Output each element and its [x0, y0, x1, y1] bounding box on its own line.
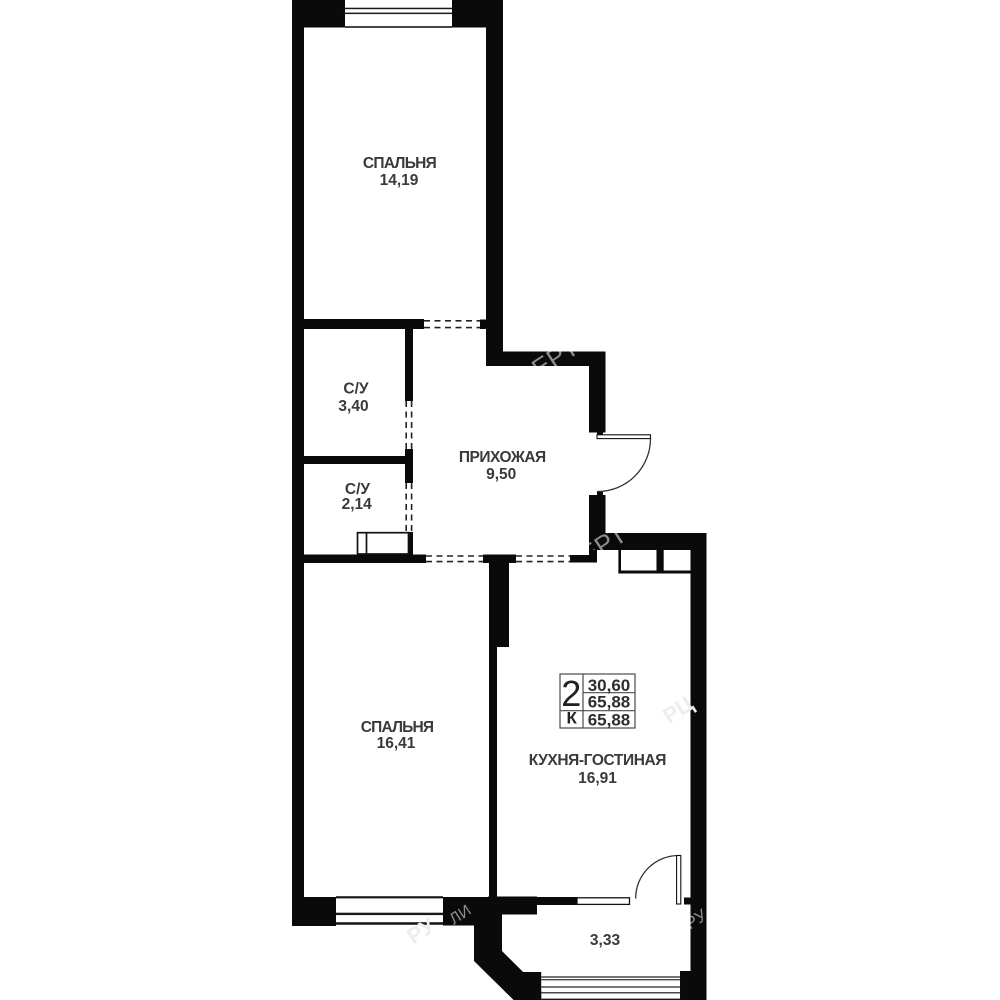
svg-text:К: К: [567, 709, 578, 728]
svg-text:С/У: С/У: [343, 381, 369, 398]
svg-text:65,88: 65,88: [588, 693, 631, 712]
svg-text:16,41: 16,41: [377, 735, 416, 752]
svg-text:14,19: 14,19: [380, 172, 419, 189]
svg-text:65,88: 65,88: [588, 711, 631, 730]
svg-text:СПАЛЬНЯ: СПАЛЬНЯ: [361, 719, 434, 736]
svg-text:ПРИХОЖАЯ: ПРИХОЖАЯ: [459, 449, 546, 466]
svg-text:КУХНЯ-ГОСТИНАЯ: КУХНЯ-ГОСТИНАЯ: [529, 752, 667, 769]
svg-text:2,14: 2,14: [342, 496, 373, 513]
svg-text:16,91: 16,91: [578, 770, 617, 787]
svg-text:3,40: 3,40: [338, 398, 368, 415]
svg-text:9,50: 9,50: [486, 466, 516, 483]
svg-text:3,33: 3,33: [590, 932, 621, 949]
svg-text:СПАЛЬНЯ: СПАЛЬНЯ: [363, 155, 437, 172]
